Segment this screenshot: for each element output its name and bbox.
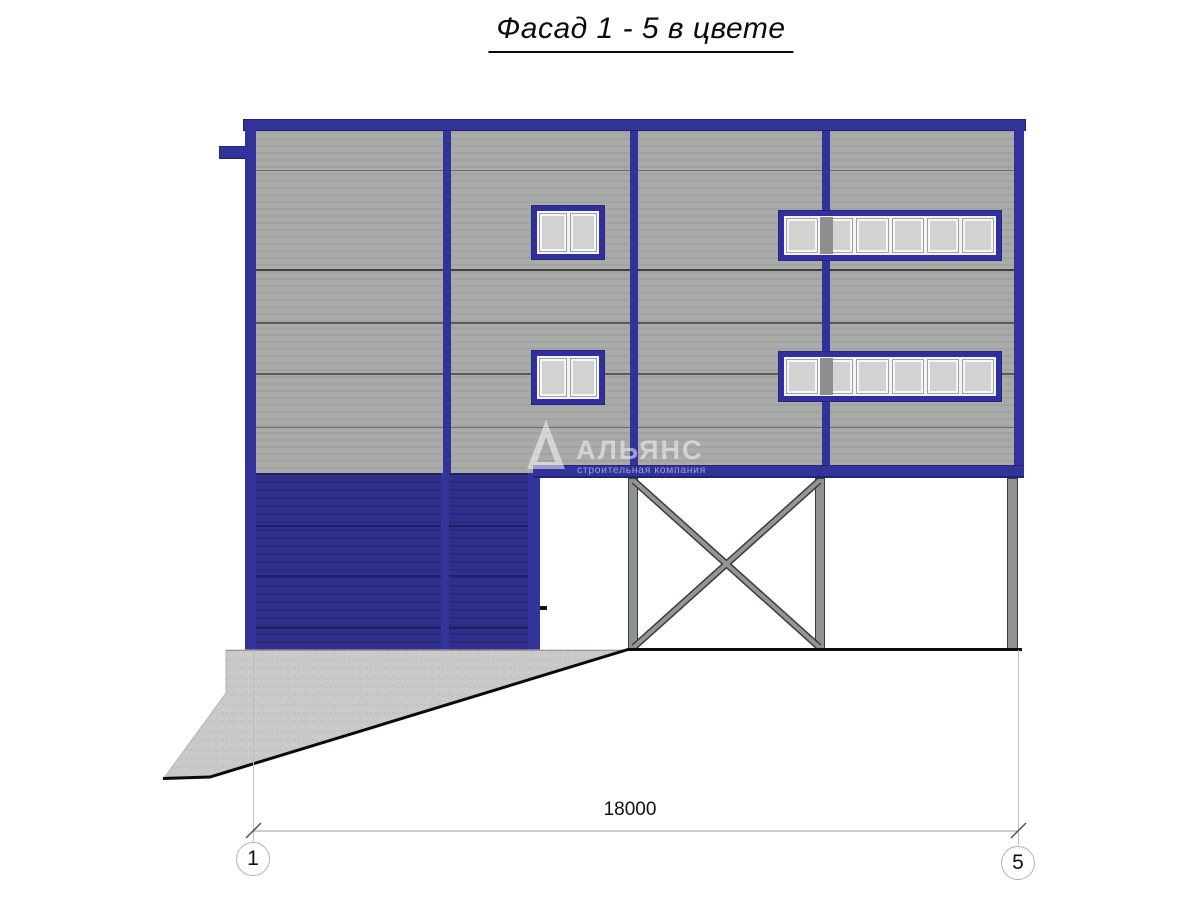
grid-marker-5: 5: [1001, 846, 1035, 880]
grid-marker-1-label: 1: [247, 847, 259, 871]
dimension-value: 18000: [604, 799, 657, 821]
drawing-sheet: Фасад 1 - 5 в цвете: [0, 0, 1200, 900]
watermark-logo-icon: [527, 420, 565, 469]
grid-marker-1: 1: [236, 842, 270, 876]
grid-marker-5-label: 5: [1012, 851, 1024, 875]
x-bracing: [634, 481, 819, 647]
watermark-company-name: АЛЬЯНС: [576, 435, 704, 466]
watermark-tagline: строительная компания: [577, 464, 706, 476]
